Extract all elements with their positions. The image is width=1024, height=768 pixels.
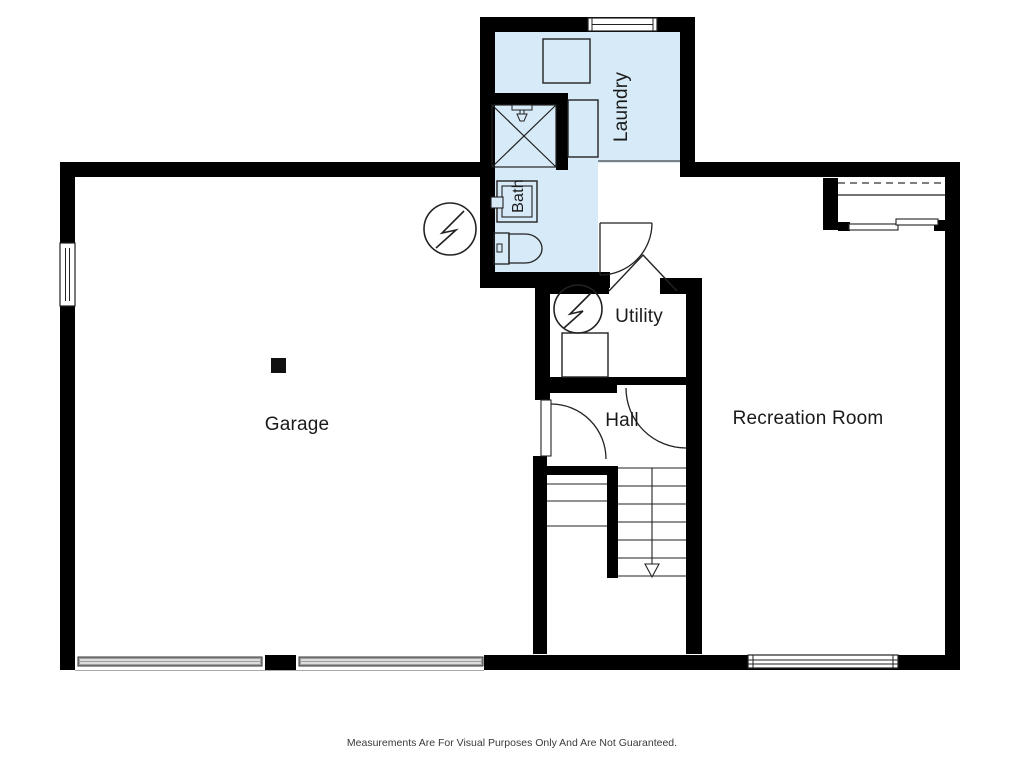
- hall-doorway-opening: [617, 385, 686, 393]
- support-column: [271, 358, 286, 373]
- garage-side-window: [60, 243, 75, 306]
- bath-room-fill: [480, 160, 598, 288]
- hall-label: Hall: [605, 410, 639, 432]
- garage-door-left: [75, 655, 265, 670]
- laundry-window: [588, 18, 657, 31]
- stairs-down-arrow-icon: [645, 564, 659, 577]
- utility-label: Utility: [615, 306, 663, 328]
- floor-plan: Laundry Bath Utility Hall Garage Recreat…: [0, 0, 1024, 768]
- bath-label: Bath: [510, 179, 528, 213]
- garage-hall-door-swing: [541, 400, 606, 459]
- closet: [838, 183, 945, 230]
- furnace-icon: [424, 203, 476, 255]
- disclaimer-text: Measurements Are For Visual Purposes Onl…: [347, 737, 677, 749]
- garage-label: Garage: [265, 414, 330, 436]
- garage-door-right: [296, 655, 484, 670]
- recreation-room-label: Recreation Room: [733, 408, 884, 430]
- sliding-closet-door: [849, 219, 938, 230]
- floor-plan-drawing: [0, 0, 1024, 768]
- laundry-label: Laundry: [611, 72, 633, 142]
- bath-door-swing: [600, 223, 652, 275]
- utility-appliance-icon: [562, 333, 608, 377]
- recreation-room-window: [748, 655, 898, 668]
